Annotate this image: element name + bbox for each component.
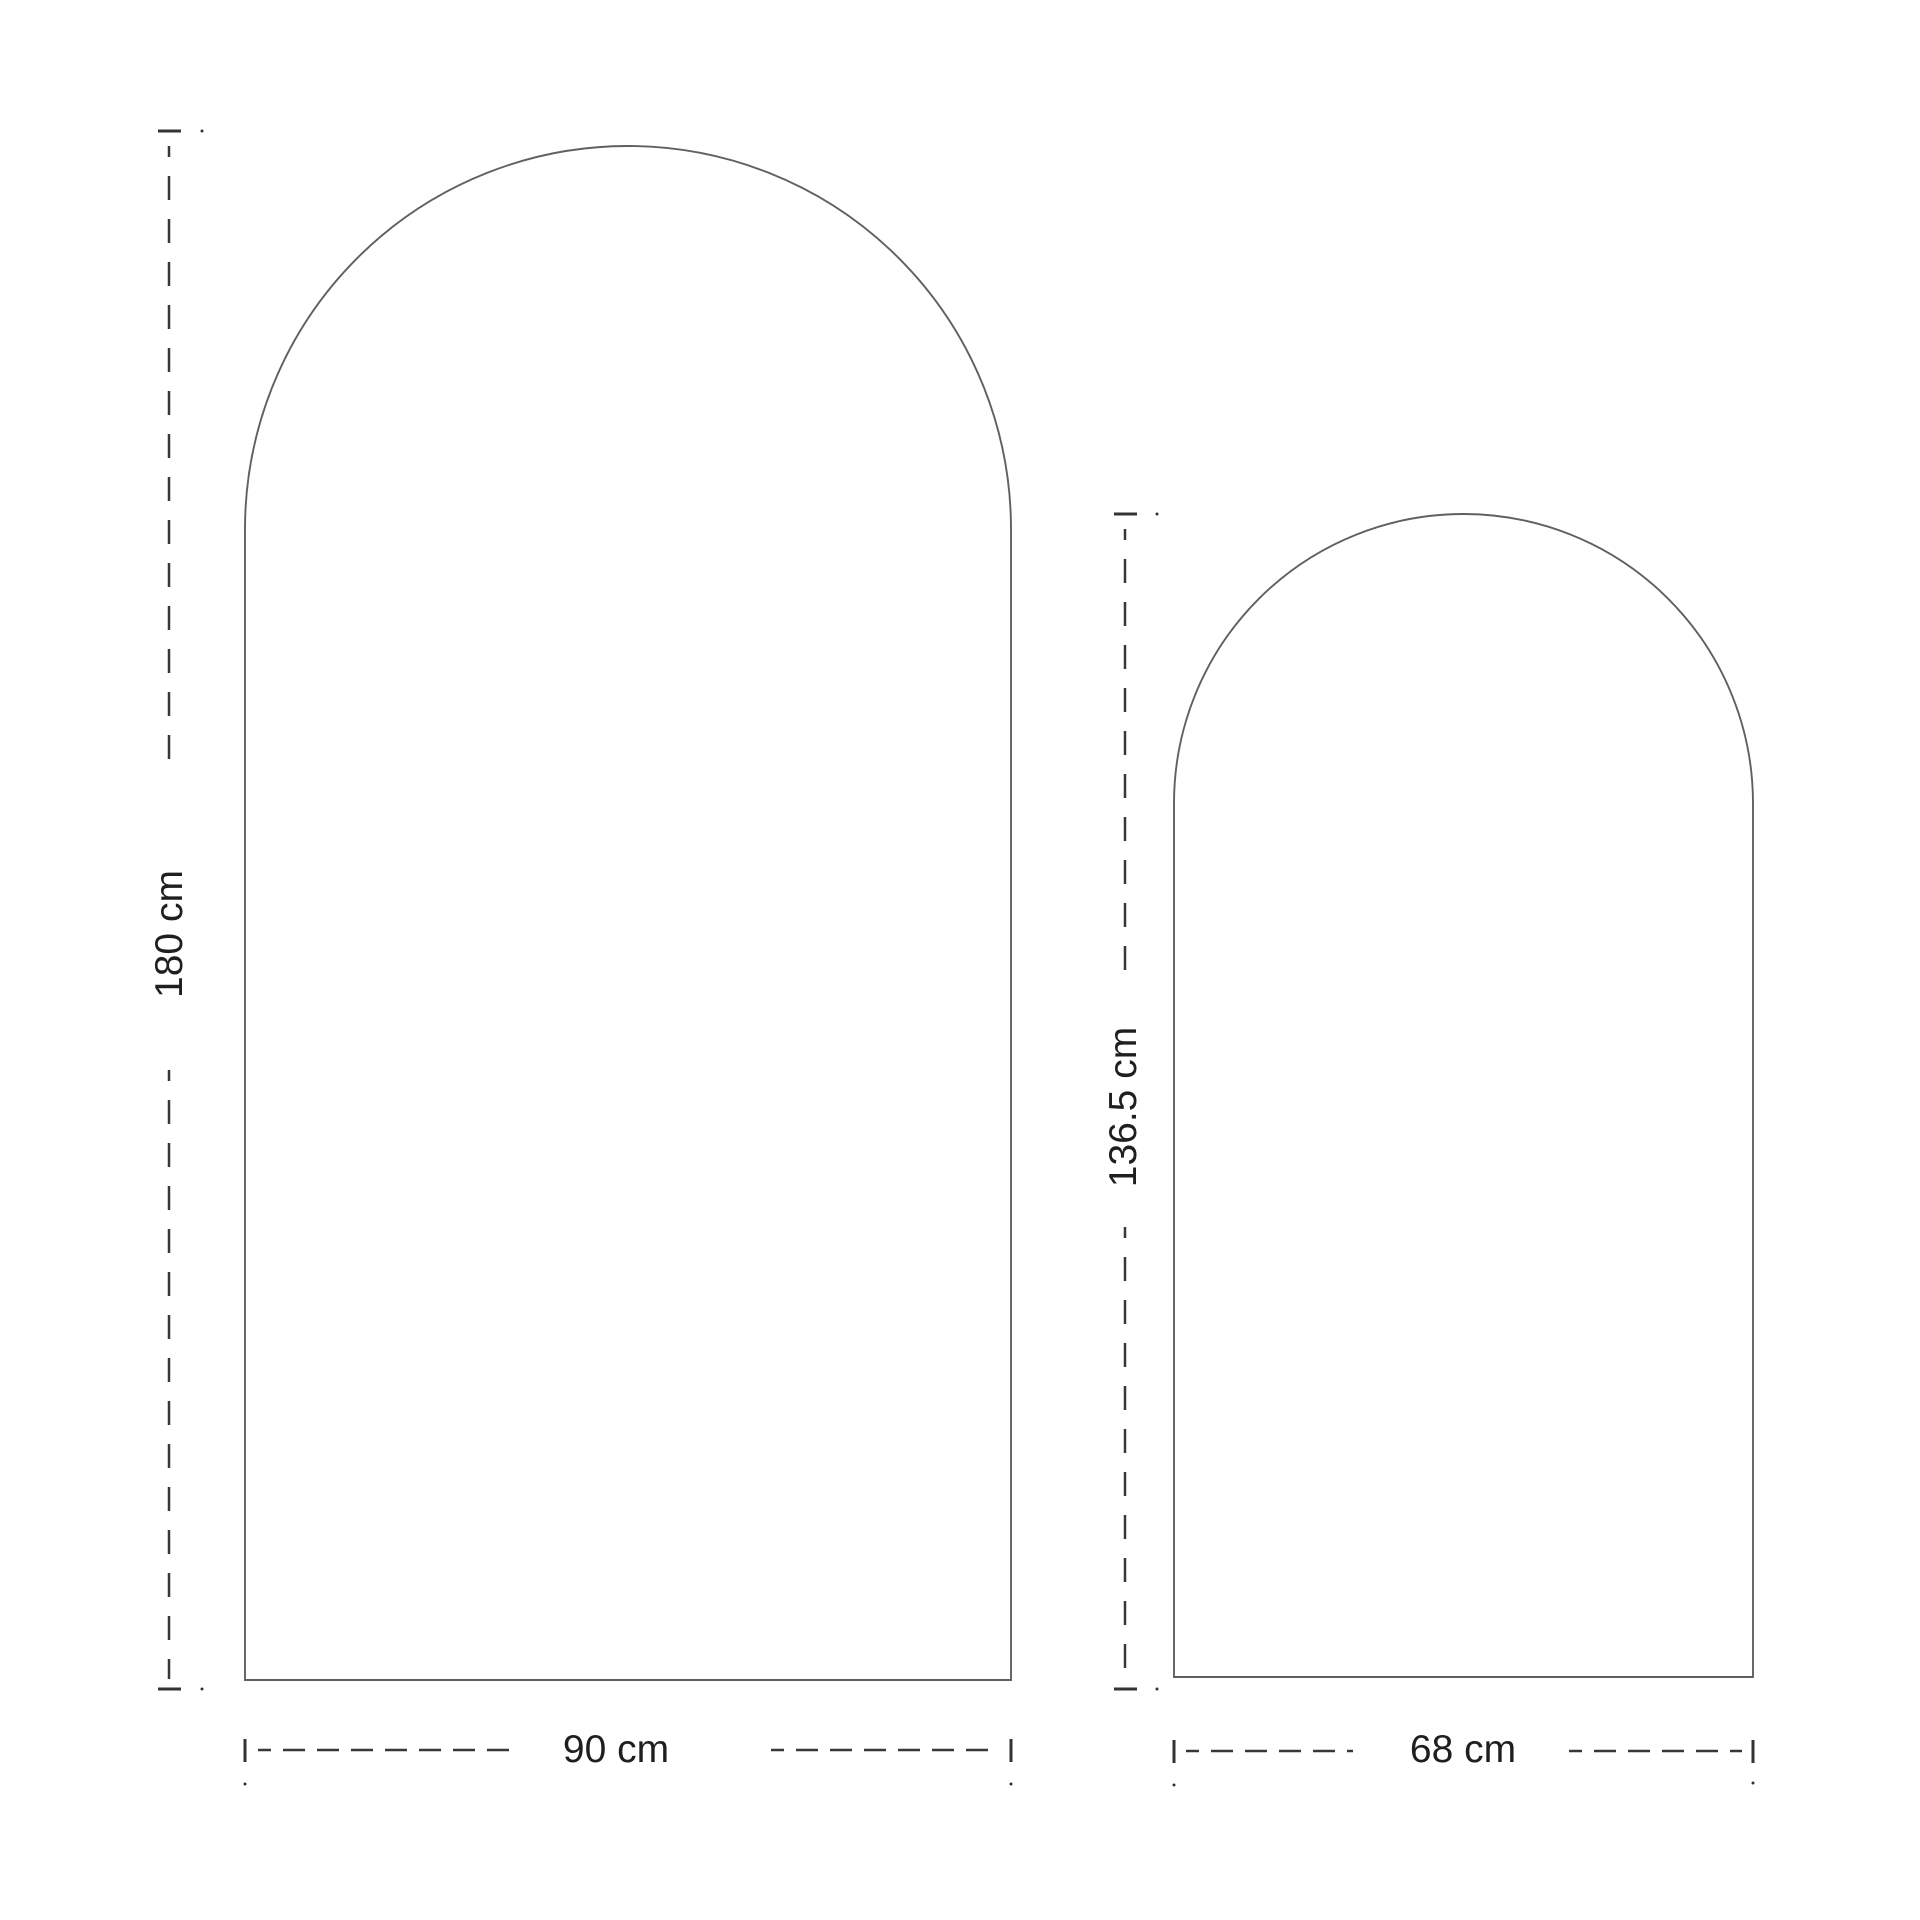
svg-text:68 cm: 68 cm	[1410, 1728, 1516, 1771]
svg-text:90 cm: 90 cm	[563, 1728, 669, 1771]
svg-text:136.5 cm: 136.5 cm	[1102, 1027, 1145, 1187]
svg-text:180 cm: 180 cm	[148, 870, 191, 998]
